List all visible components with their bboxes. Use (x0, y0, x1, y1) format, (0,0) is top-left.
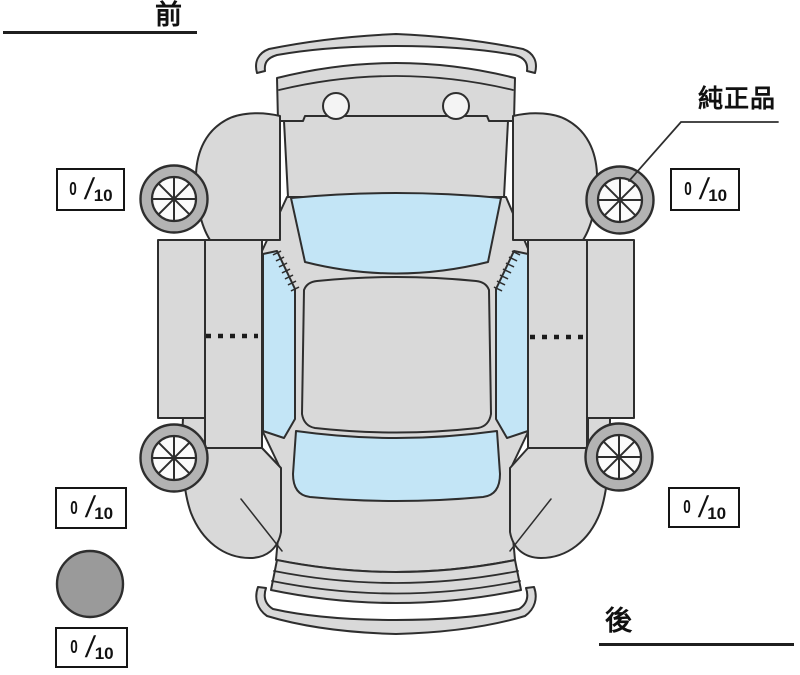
door-panel-right (528, 240, 587, 448)
vehicle-condition-diagram: 前 後 純正品 0/10 0/10 0/10 0/10 0/10 (0, 0, 800, 675)
genuine-part-label: 純正品 (698, 87, 776, 112)
rear-underline (599, 643, 794, 646)
front-underline (3, 31, 197, 34)
rear-label: 後 (605, 608, 633, 635)
rocker-panel-left (158, 240, 205, 418)
score-value: 0 (71, 637, 79, 658)
front-fender-left (196, 113, 280, 240)
wheel-front-right-icon (587, 167, 654, 234)
windshield (291, 193, 501, 274)
wheel-rear-left-icon (141, 425, 208, 492)
tread-score-box-front-right: 0/10 (670, 168, 740, 211)
score-max: 10 (708, 174, 727, 206)
headlight-left-icon (323, 93, 349, 119)
score-value: 0 (70, 498, 78, 519)
rocker-panel-right (587, 240, 634, 418)
hood (284, 116, 508, 197)
tread-score-box-rear-left: 0/10 (55, 487, 127, 529)
tread-score-box-front-left: 0/10 (56, 168, 125, 211)
rear-window (293, 431, 500, 501)
score-max: 10 (95, 632, 114, 664)
side-window-left (263, 251, 295, 438)
wheel-front-left-icon (141, 166, 208, 233)
score-max: 10 (94, 492, 113, 524)
side-window-right (496, 251, 528, 438)
front-panel (277, 63, 515, 121)
front-fender-right (513, 113, 597, 240)
headlight-right-icon (443, 93, 469, 119)
score-value: 0 (684, 179, 692, 200)
front-label: 前 (155, 2, 183, 29)
spare-tire-icon (57, 551, 123, 617)
roof (302, 277, 491, 433)
tread-score-box-spare: 0/10 (55, 627, 128, 668)
score-value: 0 (70, 179, 78, 200)
car-top-view (0, 0, 800, 675)
wheel-rear-right-icon (586, 424, 653, 491)
score-value: 0 (683, 497, 691, 518)
door-panel-left (205, 240, 262, 448)
score-max: 10 (94, 174, 113, 206)
score-max: 10 (707, 492, 726, 524)
tread-score-box-rear-right: 0/10 (668, 487, 740, 528)
